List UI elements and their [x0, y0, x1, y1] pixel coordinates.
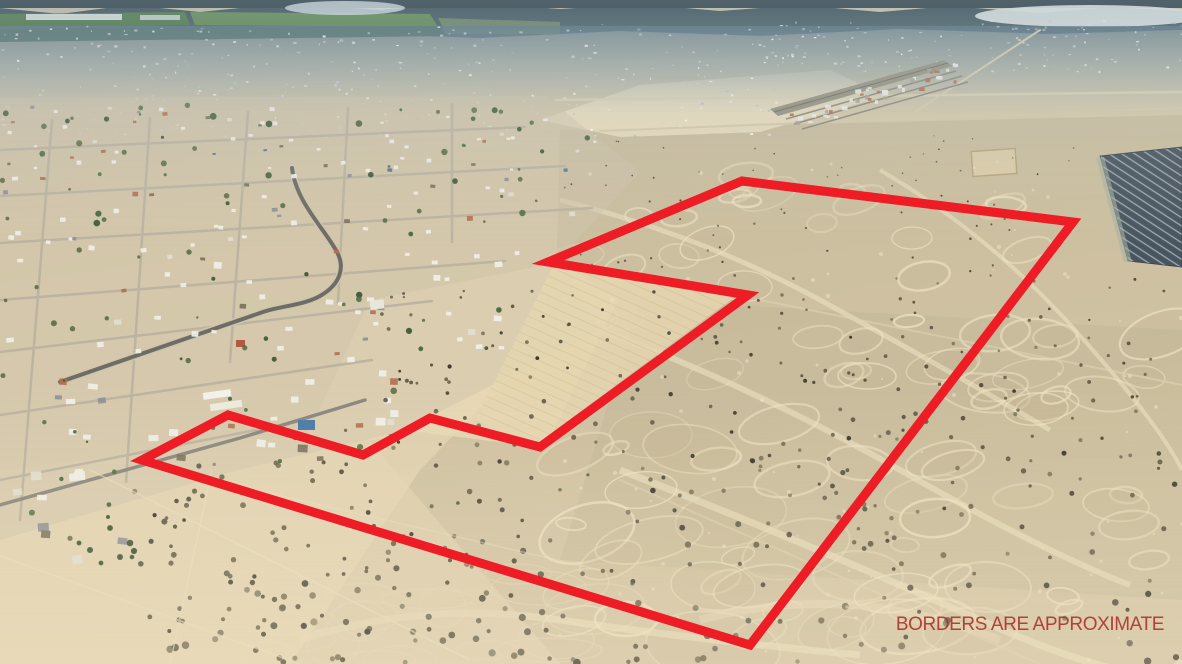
aerial-photo: BORDERS ARE APPROXIMATE — [0, 0, 1182, 664]
disclaimer-text: BORDERS ARE APPROXIMATE — [896, 614, 1164, 636]
aerial-scene — [0, 0, 1182, 664]
